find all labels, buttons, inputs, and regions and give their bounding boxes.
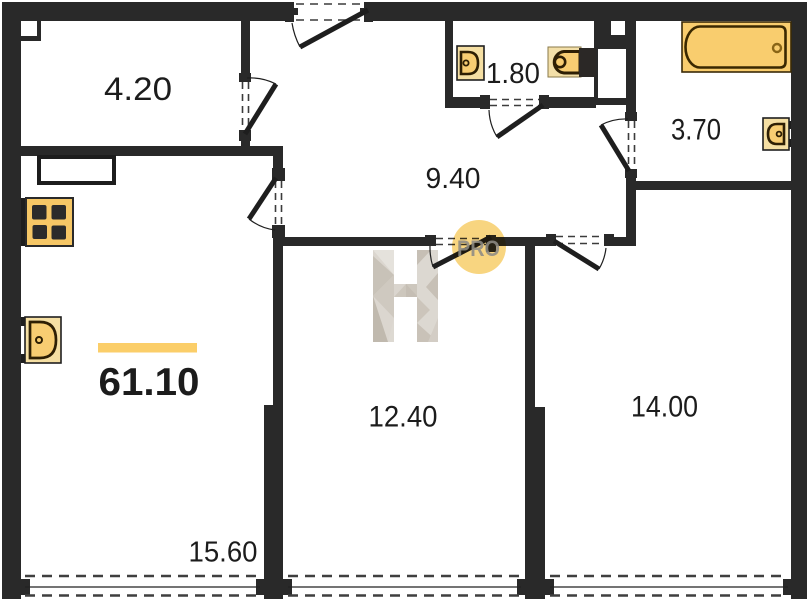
svg-text:61.10: 61.10 <box>99 361 200 404</box>
svg-text:9.40: 9.40 <box>426 163 481 195</box>
svg-text:PRO: PRO <box>457 236 500 261</box>
svg-text:15.60: 15.60 <box>189 537 258 569</box>
svg-text:4.20: 4.20 <box>104 71 172 107</box>
svg-text:14.00: 14.00 <box>631 391 698 424</box>
svg-text:1.80: 1.80 <box>486 58 540 90</box>
svg-text:3.70: 3.70 <box>671 114 721 147</box>
svg-text:12.40: 12.40 <box>369 401 438 434</box>
